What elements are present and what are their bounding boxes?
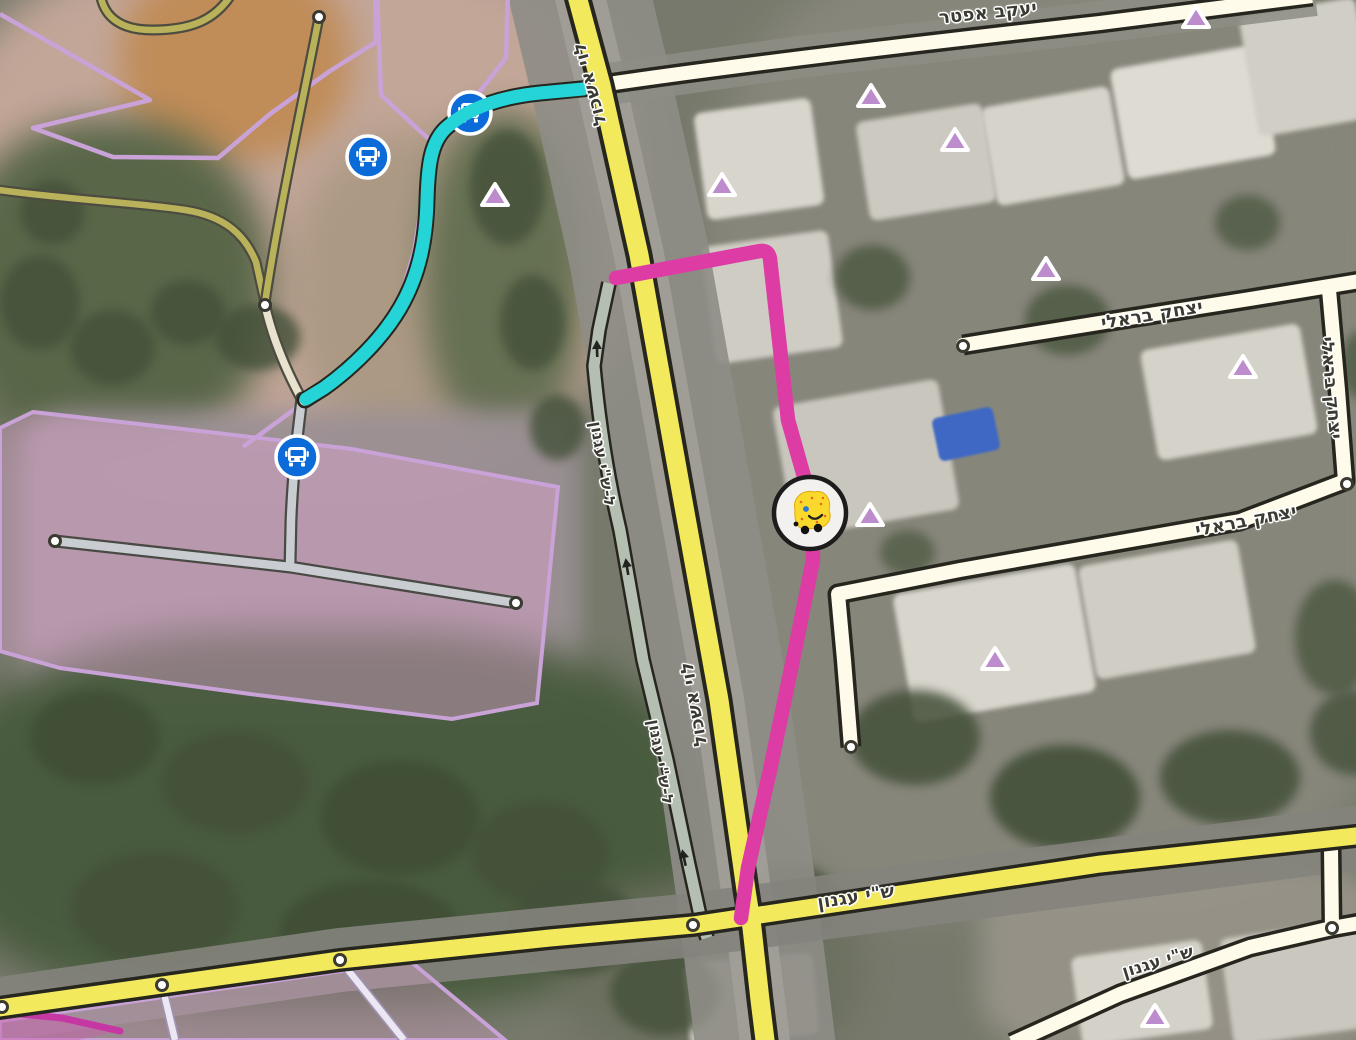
junction-node [0, 1002, 8, 1013]
map-viewport[interactable]: יעקב אפטר יצחק בראלי יצחק בראלי יצחק ברא… [0, 0, 1356, 1040]
place-triangle-marker[interactable] [858, 85, 884, 106]
street-apter [601, 0, 1312, 85]
bus-stop-icons [276, 92, 491, 478]
place-triangle-marker[interactable] [482, 184, 508, 205]
street-bareli-upper [963, 281, 1356, 345]
place-triangle-marker[interactable] [982, 648, 1008, 669]
junction-node [260, 300, 271, 311]
junction-node [157, 980, 168, 991]
street-bareli-l-casing [838, 290, 1345, 747]
place-triangle-marker[interactable] [942, 129, 968, 150]
junction-node [688, 920, 699, 931]
junction-node [314, 12, 325, 23]
place-triangle-marker[interactable] [1033, 258, 1059, 279]
mood-wheel-left [801, 526, 809, 534]
junction-node [846, 742, 857, 753]
bus-stop-icon[interactable] [276, 436, 318, 478]
junction-node [335, 955, 346, 966]
waze-mood-icon[interactable] [774, 477, 846, 549]
junction-node [50, 536, 61, 547]
path-long [0, 189, 265, 303]
path-stub [265, 305, 301, 398]
junction-node [958, 341, 969, 352]
place-triangle-marker[interactable] [709, 174, 735, 195]
junction-node [1327, 923, 1338, 934]
junction-node [511, 598, 522, 609]
path-up [265, 17, 319, 303]
place-triangle-marker[interactable] [1230, 356, 1256, 377]
junction-node [1342, 479, 1353, 490]
walking-paths [0, 0, 319, 398]
map-overlay-svg [0, 0, 1356, 1040]
place-triangle-marker[interactable] [1142, 1005, 1168, 1026]
mood-arm [794, 522, 799, 527]
bus-stop-icon[interactable] [347, 136, 389, 178]
mood-eye [803, 506, 809, 512]
place-triangle-marker[interactable] [857, 504, 883, 525]
mood-wheel-right [814, 524, 822, 532]
